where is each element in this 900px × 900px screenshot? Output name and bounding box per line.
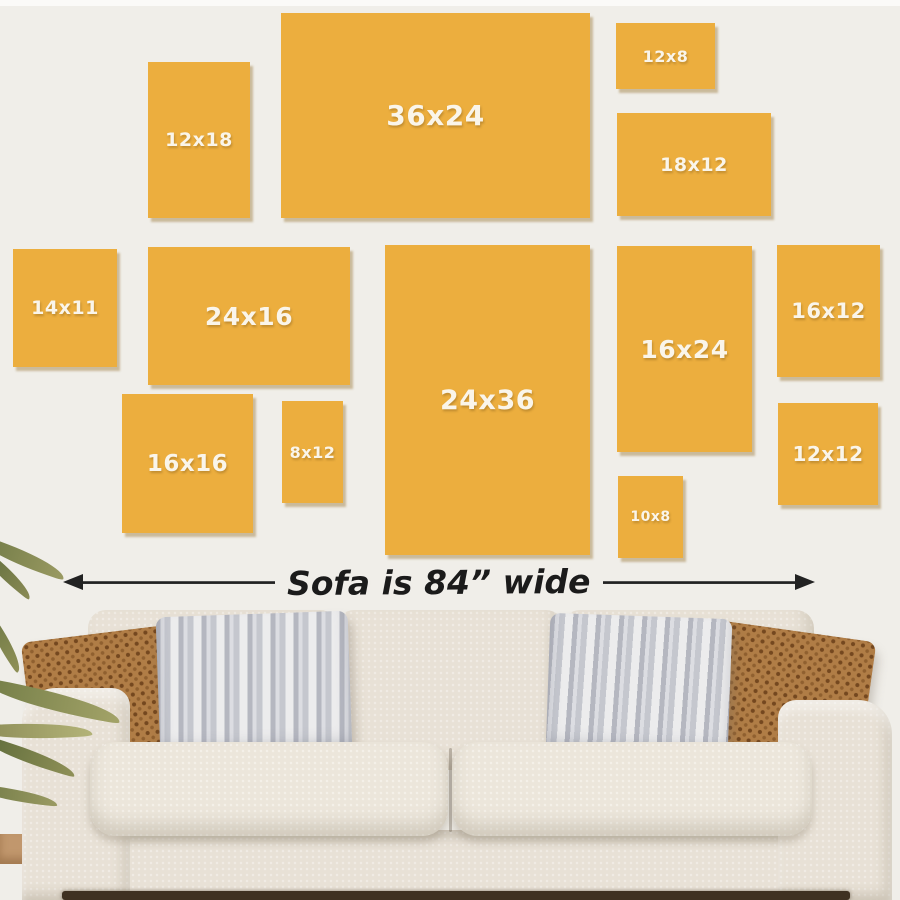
size-frame-10x8: 10x8	[618, 476, 683, 558]
size-frame-12x8: 12x8	[616, 23, 715, 89]
frame-size-label: 16x24	[640, 335, 728, 364]
arrow-line-right	[603, 581, 795, 584]
frame-size-label: 8x12	[290, 443, 336, 462]
arrow-line-left	[83, 581, 275, 584]
sofa-base	[58, 830, 848, 896]
size-frame-14x11: 14x11	[13, 249, 117, 367]
pillow-gray-left	[156, 611, 353, 760]
frame-size-label: 36x24	[386, 99, 485, 132]
frame-size-label: 24x36	[440, 385, 535, 416]
sofa-width-caption: Sofa is 84” wide	[275, 561, 603, 602]
frame-size-label: 16x16	[147, 451, 228, 477]
sofa-seat-cushion-right	[452, 742, 812, 836]
size-frame-16x12: 16x12	[777, 245, 880, 377]
frame-size-label: 16x12	[791, 299, 866, 323]
frame-size-label: 12x18	[165, 129, 233, 151]
sofa-width-arrow: Sofa is 84” wide	[63, 562, 815, 602]
frame-size-label: 18x12	[660, 154, 728, 176]
size-frame-24x36: 24x36	[385, 245, 590, 555]
size-frame-36x24: 36x24	[281, 13, 590, 218]
frame-size-label: 14x11	[31, 297, 99, 319]
size-frame-24x16: 24x16	[148, 247, 350, 385]
seat-cushion-divider	[449, 748, 452, 832]
arrow-right-icon	[795, 574, 815, 590]
size-guide-image: 12x1836x2412x818x1214x1124x1624x3616x241…	[0, 0, 900, 900]
pillow-gray-right	[546, 613, 733, 759]
size-frame-8x12: 8x12	[282, 401, 343, 503]
frame-size-label: 12x8	[643, 47, 689, 66]
arrow-left-icon	[63, 574, 83, 590]
size-frame-16x24: 16x24	[617, 246, 752, 452]
frame-size-label: 12x12	[792, 442, 863, 466]
frame-size-label: 24x16	[205, 302, 293, 331]
frame-size-label: 10x8	[630, 509, 670, 525]
sofa-seat-cushion-left	[90, 742, 448, 836]
size-frame-16x16: 16x16	[122, 394, 253, 533]
size-frame-12x18: 12x18	[148, 62, 250, 218]
size-frame-18x12: 18x12	[617, 113, 771, 216]
size-frame-12x12: 12x12	[778, 403, 878, 505]
floor-shadow-line	[62, 891, 850, 900]
